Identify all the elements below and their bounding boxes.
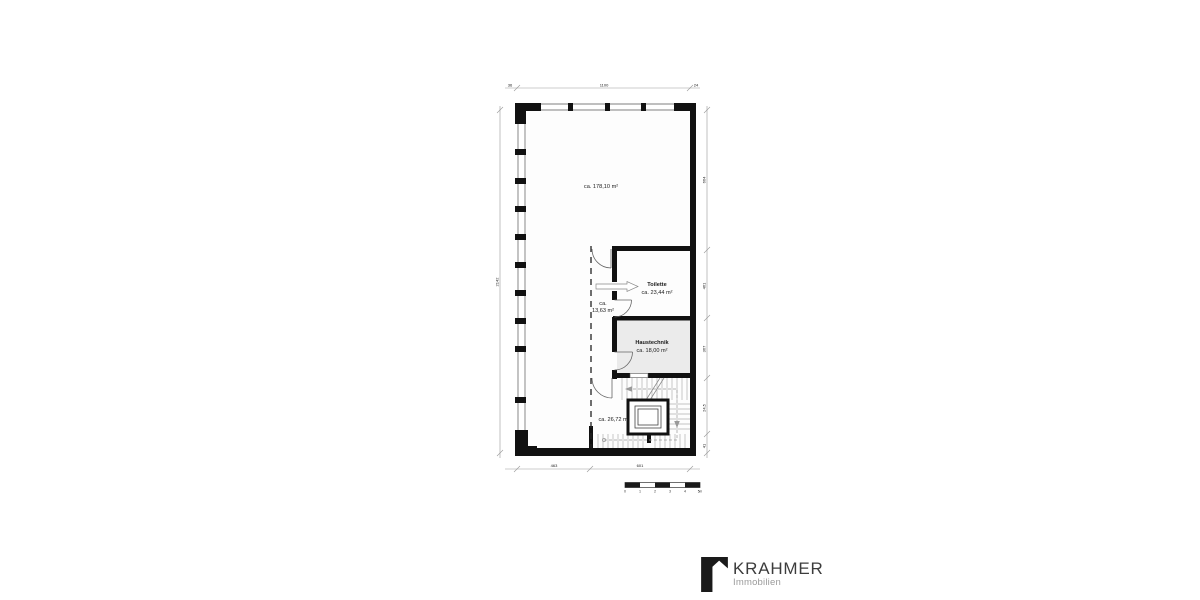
dim-top-left: 36 <box>508 83 513 88</box>
elevator-shaft <box>628 400 668 434</box>
window-mullion <box>515 262 526 268</box>
window-mullion <box>515 149 526 155</box>
wall-bottom <box>515 448 696 456</box>
company-tagline: Immobilien <box>733 578 824 588</box>
floor-plan-drawing: ca. 178,10 m² Toilette ca. 23,44 m² ca. … <box>0 0 1200 600</box>
scale-label: 1 <box>639 490 641 494</box>
haustechnik-floor <box>617 320 690 373</box>
window-mullion <box>515 397 526 403</box>
scale-bar: 0 1 2 3 4 5m <box>624 483 702 494</box>
window-mullion <box>641 103 646 111</box>
window-mullion <box>568 103 573 111</box>
company-name: KRAHMER <box>733 560 824 577</box>
toilette-area-label: ca. 23,44 m² <box>641 290 672 296</box>
haustechnik-area-label: ca. 18,00 m² <box>636 348 667 354</box>
scale-label: 0 <box>624 490 626 494</box>
window-mullion <box>515 346 526 352</box>
scale-bar-segment <box>685 483 700 488</box>
scale-label: 2 <box>654 490 656 494</box>
dim-right-seg: 664 <box>702 176 707 183</box>
main-room-area-label: ca. 178,10 m² <box>584 184 618 190</box>
building-icon <box>701 557 728 592</box>
wall-toilette-top <box>612 246 692 251</box>
wall-corridor <box>612 317 617 352</box>
haustechnik-name-label: Haustechnik <box>635 340 669 346</box>
scale-label: 4 <box>684 490 686 494</box>
dim-bottom-seg1: 463 <box>551 463 558 468</box>
dim-right-seg: 24,5 <box>702 403 707 412</box>
corridor-area-label-line2: 13,63 m² <box>592 308 614 314</box>
wall-haustechnik-top <box>613 316 690 321</box>
dim-right-seg: 461 <box>702 282 707 289</box>
window-mullion <box>515 234 526 240</box>
window-mullion <box>515 290 526 296</box>
dim-top-middle: 1100 <box>600 83 609 88</box>
window-mullion <box>515 178 526 184</box>
wall-right <box>690 103 696 456</box>
dim-bottom-seg2: 601 <box>637 463 644 468</box>
stairwell-area-label: ca. 26,72 m² <box>598 417 629 423</box>
company-logo: KRAHMER Immobilien <box>701 557 824 592</box>
wall-corridor <box>612 291 617 300</box>
dim-top-right: 24 <box>694 83 699 88</box>
scale-bar-labels: 0 1 2 3 4 5m <box>624 490 702 494</box>
wall-corner-tl-leg <box>515 111 526 124</box>
floor-plan-page: ca. 178,10 m² Toilette ca. 23,44 m² ca. … <box>0 0 1200 600</box>
wall-opening <box>630 374 648 378</box>
window-mullion <box>515 206 526 212</box>
wall-stair-top <box>612 373 630 378</box>
corridor-area-label-line1: ca. <box>599 301 607 307</box>
logo-text-block: KRAHMER Immobilien <box>733 557 824 588</box>
toilette-name-label: Toilette <box>647 282 666 288</box>
wall-stair-top <box>648 373 692 378</box>
scale-bar-segment <box>655 483 670 488</box>
dim-left-total: 2142 <box>495 277 500 287</box>
scale-label: 3 <box>669 490 671 494</box>
scale-bar-segment <box>625 483 640 488</box>
window-mullion <box>515 318 526 324</box>
elevator <box>628 400 668 434</box>
wall-corner-bl-foot <box>526 446 537 456</box>
scale-label: 5m <box>698 490 703 494</box>
wall-corridor <box>612 251 617 282</box>
window-mullion <box>605 103 610 111</box>
dim-right-seg: 41 <box>702 443 707 448</box>
wall-corner-tl <box>515 103 541 111</box>
dim-right-seg: 367 <box>702 345 707 352</box>
